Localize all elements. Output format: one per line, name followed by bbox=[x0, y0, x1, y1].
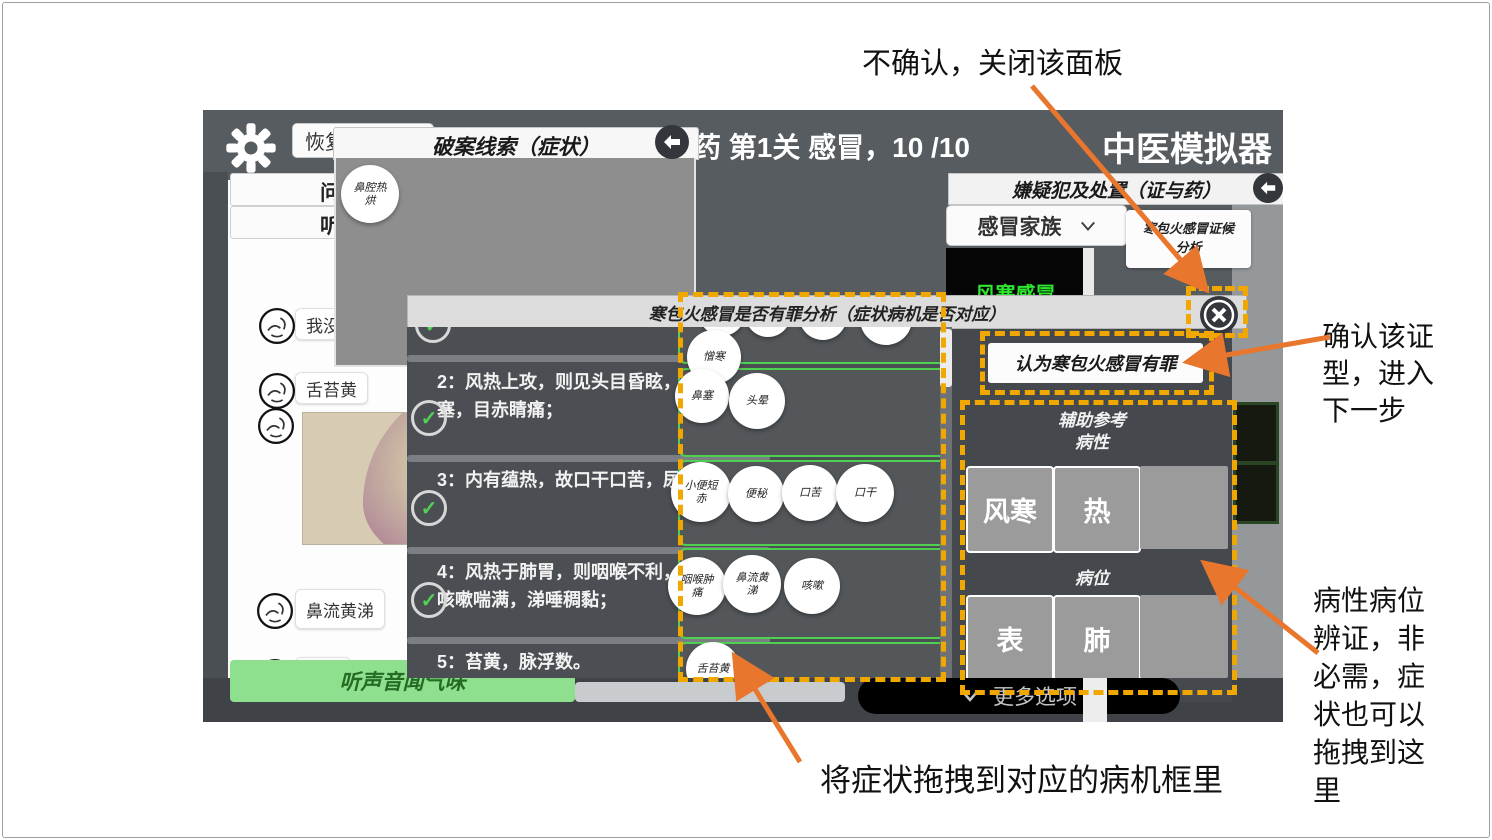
patient-avatar bbox=[259, 373, 295, 409]
analysis-note-card[interactable]: 寒包火感冒证候 分析 bbox=[1126, 210, 1251, 268]
scrollbar-thumb[interactable] bbox=[1083, 678, 1107, 722]
left-edge-strip bbox=[203, 172, 228, 722]
location-option-label: 肺 bbox=[1084, 619, 1111, 658]
suspect-panel-header: 嫌疑犯及处置（证与药） bbox=[948, 173, 1283, 205]
back-arrow-icon bbox=[662, 132, 682, 152]
nature-option-label: 热 bbox=[1084, 490, 1111, 529]
close-icon bbox=[1200, 296, 1238, 334]
herb-slot bbox=[1233, 402, 1279, 464]
family-dropdown-label: 感冒家族 bbox=[978, 211, 1062, 241]
chevron-down-icon bbox=[1080, 220, 1096, 232]
level-indicator: 药 第1关 感冒，10 /10 bbox=[693, 126, 970, 166]
patient-avatar bbox=[259, 308, 295, 344]
check-icon: ✓ bbox=[415, 327, 451, 343]
clue-back-button[interactable] bbox=[655, 125, 689, 159]
symptom-chip[interactable]: 小便短 赤 bbox=[671, 462, 731, 522]
clue-panel-header: 破案线索（症状） bbox=[333, 127, 699, 160]
annotation-confirm: 确认该证 型，进入 下一步 bbox=[1322, 318, 1434, 429]
check-icon: ✓ bbox=[411, 400, 447, 436]
nature-option-label: 风寒 bbox=[983, 490, 1037, 529]
analysis-dialog-titlebar: 寒包火感冒是否有罪分析（症状病机是否对应） bbox=[407, 295, 1247, 329]
app-title: 中医模拟器 bbox=[1102, 122, 1272, 171]
patient-avatar bbox=[258, 408, 294, 444]
back-arrow-icon bbox=[1259, 179, 1277, 197]
annotation-close: 不确认，关闭该面板 bbox=[862, 40, 1123, 82]
analysis-dialog-body: ✓ 2：风热上攻，则见头目昏眩，耳鸣，鼻塞，目赤睛痛； ✓ 3：内有蕴热，故口干… bbox=[407, 327, 952, 678]
analysis-dialog-title: 寒包火感冒是否有罪分析（症状病机是否对应） bbox=[408, 300, 1246, 325]
suspect-panel-title: 嫌疑犯及处置（证与药） bbox=[949, 176, 1283, 203]
more-options-button[interactable]: 更多选项 bbox=[858, 678, 1180, 714]
location-empty-slot[interactable] bbox=[1140, 595, 1228, 678]
location-option-label: 表 bbox=[997, 619, 1024, 658]
check-icon: ✓ bbox=[411, 490, 447, 526]
more-options-label: 更多选项 bbox=[993, 681, 1077, 711]
symptom-chip[interactable]: 头晕 bbox=[729, 373, 785, 429]
location-option-biao[interactable]: 表 bbox=[966, 595, 1054, 682]
symptom-chip[interactable]: 口苦 bbox=[782, 465, 838, 521]
symptom-chip[interactable]: 鼻塞 bbox=[675, 369, 729, 423]
nature-option-fenghan[interactable]: 风寒 bbox=[966, 466, 1054, 553]
clue-panel-title: 破案线索（症状） bbox=[334, 131, 698, 161]
horizontal-scrollbar[interactable] bbox=[575, 682, 845, 702]
chat-message: 舌苔黄 bbox=[295, 372, 368, 404]
confirm-guilty-label: 认为寒包火感冒有罪 bbox=[1015, 350, 1177, 376]
nature-empty-slot[interactable] bbox=[1140, 466, 1228, 549]
family-dropdown[interactable]: 感冒家族 bbox=[946, 205, 1127, 246]
location-option-fei[interactable]: 肺 bbox=[1053, 595, 1141, 682]
symptom-chip[interactable]: 鼻流黄 涕 bbox=[723, 555, 781, 613]
suspect-back-button[interactable] bbox=[1253, 173, 1283, 203]
nature-option-re[interactable]: 热 bbox=[1053, 466, 1141, 553]
symptom-chip[interactable]: 咽喉肿 痛 bbox=[668, 557, 726, 615]
game-window: 恢复 药 第1关 感冒，10 /10 中医模拟器 问诊 听诊 我没有感冒 舌苔黄 bbox=[203, 110, 1283, 722]
aux-location-header: 病位 bbox=[1007, 568, 1177, 590]
dialog-close-button[interactable] bbox=[1200, 296, 1238, 334]
annotation-aux: 病性病位 辨证，非 必需，症 状也可以 拖拽到这 里 bbox=[1313, 582, 1425, 810]
dialog-scrollbar-thumb[interactable] bbox=[940, 329, 952, 387]
symptom-chip[interactable]: 便秘 bbox=[728, 466, 784, 522]
patient-avatar bbox=[257, 593, 293, 629]
settings-gear-icon[interactable] bbox=[225, 122, 277, 174]
herb-slot bbox=[1233, 462, 1279, 524]
symptom-chip[interactable]: 鼻腔热 烘 bbox=[341, 165, 399, 223]
symptom-chip[interactable]: 口干 bbox=[836, 464, 894, 522]
confirm-guilty-button[interactable]: 认为寒包火感冒有罪 bbox=[988, 343, 1203, 383]
symptom-chip[interactable]: 咳嗽 bbox=[784, 558, 840, 614]
check-icon: ✓ bbox=[411, 582, 447, 618]
chat-message: 鼻流黄涕 bbox=[295, 589, 385, 629]
chevron-down-icon bbox=[961, 690, 979, 702]
annotation-drag: 将症状拖拽到对应的病机框里 bbox=[820, 755, 1223, 800]
aux-nature-header: 辅助参考 病性 bbox=[1007, 410, 1177, 454]
